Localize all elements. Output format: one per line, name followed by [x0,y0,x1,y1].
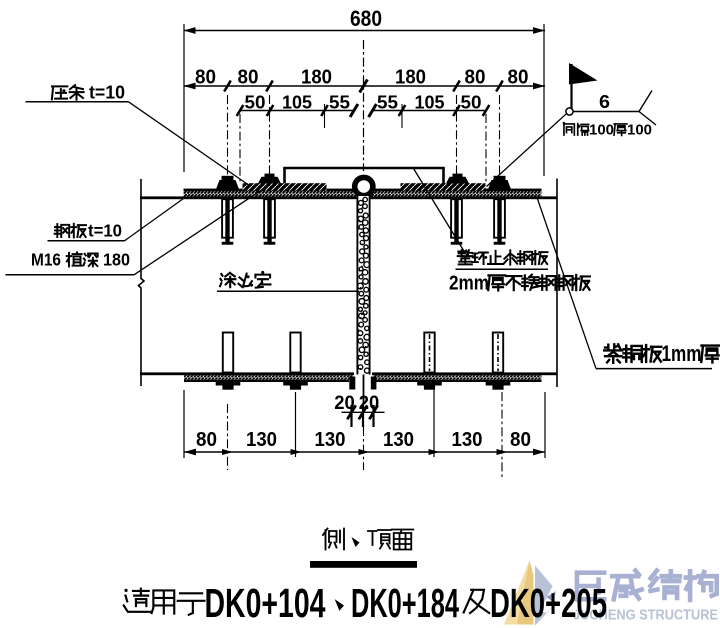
svg-text:100: 100 [589,122,614,139]
svg-text:130: 130 [452,428,483,451]
svg-text:130: 130 [315,428,346,451]
svg-text:6: 6 [599,91,610,112]
svg-text:t=10: t=10 [88,221,122,241]
svg-text:50: 50 [245,92,266,113]
svg-text:80: 80 [510,428,531,451]
svg-text:130: 130 [383,428,414,451]
svg-text:80: 80 [195,66,216,89]
svg-text:DK0+104: DK0+104 [205,580,326,626]
svg-text:680: 680 [350,6,382,31]
svg-text:t=10: t=10 [89,82,125,103]
svg-text:130: 130 [246,428,277,451]
svg-text:180: 180 [103,250,130,270]
svg-text:80: 80 [238,66,259,89]
svg-text:1mm: 1mm [662,341,702,366]
svg-text:105: 105 [282,92,312,113]
svg-text:DK0+184: DK0+184 [351,580,459,626]
svg-text:180: 180 [395,66,426,89]
svg-text:80: 80 [465,66,486,89]
svg-text:DK0+205: DK0+205 [490,580,607,626]
svg-text:2mm: 2mm [449,272,489,294]
svg-text:80: 80 [508,66,529,89]
svg-text:105: 105 [415,92,445,113]
svg-text:100: 100 [627,122,652,139]
svg-text:55: 55 [377,92,398,113]
svg-text:20: 20 [359,392,380,414]
svg-text:80: 80 [196,428,217,451]
svg-text:55: 55 [329,92,350,113]
svg-text:M16: M16 [31,250,61,270]
svg-text:50: 50 [461,92,482,113]
svg-text:180: 180 [301,66,332,89]
